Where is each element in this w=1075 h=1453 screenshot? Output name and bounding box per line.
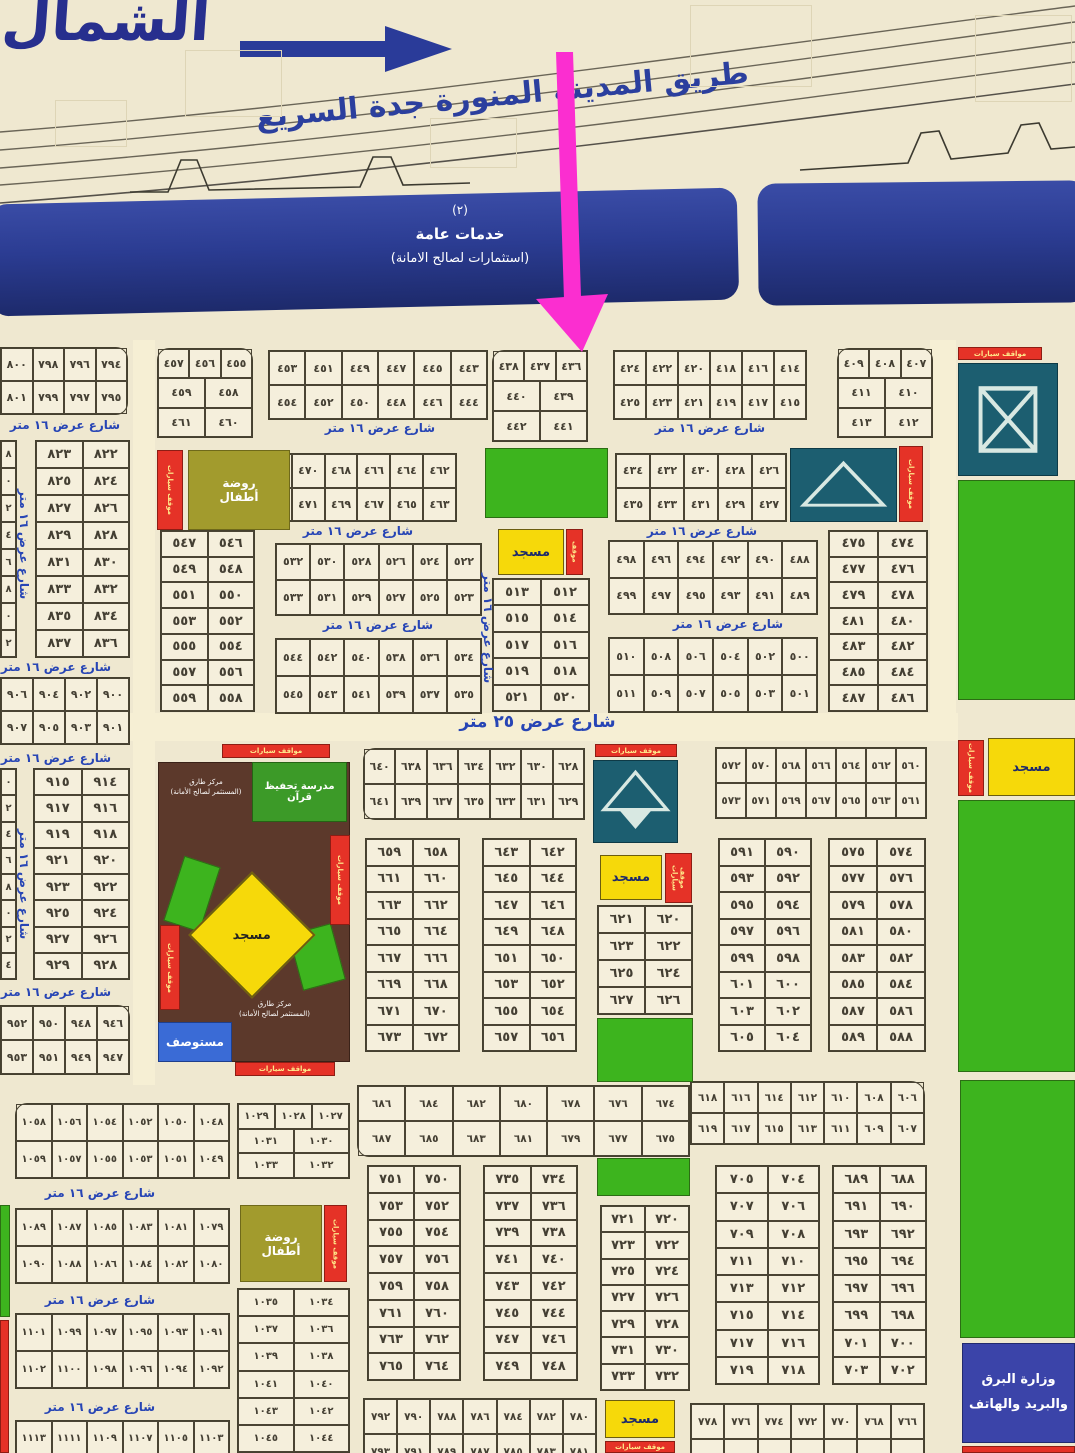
plot-٤٦٨: ٤٦٨ (325, 454, 358, 488)
plot-٧٦٧: ٧٦٧ (891, 1439, 924, 1453)
plot-٦٠٦: ٦٠٦ (891, 1082, 924, 1113)
park-area (597, 1158, 690, 1196)
plot-٤٩٢: ٤٩٢ (713, 541, 748, 578)
plot-٥٧٣: ٥٧٣ (716, 783, 746, 818)
plot-٧٧٩: ٧٧٩ (691, 1439, 724, 1453)
plot-٨٢٦: ٨٢٦ (83, 495, 130, 522)
plot-٩٠٢: ٩٠٢ (65, 678, 97, 711)
plot-٦١٥: ٦١٥ (758, 1113, 791, 1144)
plot-٥٦٢: ٥٦٢ (866, 748, 896, 783)
plot-٨٢٣: ٨٢٣ (36, 441, 83, 468)
plot-٥٦٤: ٥٦٤ (836, 748, 866, 783)
plot-٦٣٣: ٦٣٣ (490, 784, 521, 819)
plot-٤٣٤: ٤٣٤ (616, 454, 650, 488)
plot-٥٠٨: ٥٠٨ (644, 638, 679, 675)
plot-١٠٩٤: ١٠٩٤ (158, 1351, 194, 1388)
plot-٦٩١: ٦٩١ (833, 1193, 880, 1220)
plot-١٠٤٤: ١٠٤٤ (294, 1425, 350, 1452)
street-label: شارع عرض ١٦ متر (295, 421, 465, 435)
plot-٧١٣: ٧١٣ (716, 1275, 768, 1302)
plot-٧٨١: ٧٨١ (563, 1434, 596, 1453)
plot-١٠٨٣: ١٠٨٣ (123, 1209, 159, 1246)
plot-٥٢٩: ٥٢٩ (344, 580, 378, 616)
plot-٩١٩: ٩١٩ (34, 822, 82, 848)
quran-school-block: مدرسة تحفيظقرآن (252, 762, 347, 822)
parking-strip: موقف سيارات (324, 1205, 347, 1282)
plot-٤٣٠: ٤٣٠ (684, 454, 718, 488)
plot-٥٧٩: ٥٧٩ (829, 892, 877, 919)
plot-٥٩٧: ٥٩٧ (719, 919, 765, 946)
substation-block (958, 363, 1058, 476)
plot-map-page: الشمال طريق المدينة المنورة جدة السريع (… (0, 0, 1075, 1453)
plot-٦٦٢: ٦٦٢ (413, 892, 460, 919)
plot-block: ١١١٣١١١١١١٠٩١١٠٧١١٠٥١١٠٣١١١٤١١١٢١١١٠١١٠٨… (15, 1420, 230, 1453)
plot-٧٨٧: ٧٨٧ (463, 1434, 496, 1453)
plot-١٠٩٥: ١٠٩٥ (123, 1314, 159, 1351)
plot-٧٨٣: ٧٨٣ (530, 1434, 563, 1453)
plot-٧٤٤: ٧٤٤ (531, 1300, 578, 1327)
plot-block: ٤٠٩٤٠٨٤٠٧٤١١٤١٠٤١٣٤١٢ (837, 348, 933, 438)
parking-strip: موقف سيارات (160, 925, 180, 1010)
plot-٧٨٤: ٧٨٤ (497, 1399, 530, 1434)
plot-١٠٥٨: ١٠٥٨ (16, 1104, 52, 1141)
plot-block: ٥٤٧٥٤٦٥٤٩٥٤٨٥٥١٥٥٠٥٥٣٥٥٢٥٥٥٥٥٤٥٥٧٥٥٦٥٥٩٥… (160, 530, 255, 712)
plot-٦٧٢: ٦٧٢ (413, 1025, 460, 1052)
plot-٦٢٥: ٦٢٥ (598, 960, 645, 987)
plot-٧٤٠: ٧٤٠ (531, 1246, 578, 1273)
plot-٦٥٣: ٦٥٣ (483, 972, 530, 999)
plot-block: ٦٨٩٦٨٨٦٩١٦٩٠٦٩٣٦٩٢٦٩٥٦٩٤٦٩٧٦٩٦٦٩٩٦٩٨٧٠١٧… (832, 1165, 927, 1385)
plot-٦١٢: ٦١٢ (791, 1082, 824, 1113)
plot-٦٢٩: ٦٢٩ (553, 784, 584, 819)
plot-٦٨٨: ٦٨٨ (880, 1166, 927, 1193)
plot-٦٣٩: ٦٣٩ (395, 784, 426, 819)
plot-٧٥٩: ٧٥٩ (368, 1273, 414, 1300)
plot-٤٧٤: ٤٧٤ (878, 531, 927, 557)
plot-٧٩٠: ٧٩٠ (397, 1399, 430, 1434)
plot-٤١٧: ٤١٧ (742, 385, 774, 419)
plot-٤٥١: ٤٥١ (305, 351, 341, 385)
plot-٦٢٧: ٦٢٧ (598, 987, 645, 1014)
plot-١١٠٢: ١١٠٢ (16, 1351, 52, 1388)
plot-block: ٧٠٥٧٠٤٧٠٧٧٠٦٧٠٩٧٠٨٧١١٧١٠٧١٣٧١٢٧١٥٧١٤٧١٧٧… (715, 1165, 820, 1385)
plot-٦٥٤: ٦٥٤ (530, 998, 577, 1025)
plot-٥٩٩: ٥٩٩ (719, 945, 765, 972)
plot-٧٠٤: ٧٠٤ (768, 1166, 820, 1193)
plot-٨٢٢: ٨٢٢ (83, 441, 130, 468)
plot-٦٩٢: ٦٩٢ (880, 1221, 927, 1248)
plot-٦٦٨: ٦٦٨ (413, 972, 460, 999)
plot-٦٣٠: ٦٣٠ (521, 749, 552, 784)
plot-٩٢١: ٩٢١ (34, 848, 82, 874)
plot-٥٢٨: ٥٢٨ (344, 544, 378, 580)
plot-٥٧٥: ٥٧٥ (829, 839, 877, 866)
plot-٥٦٣: ٥٦٣ (866, 783, 896, 818)
plot-٧٣٨: ٧٣٨ (531, 1220, 578, 1247)
plot-١٠٥١: ١٠٥١ (158, 1141, 194, 1178)
plot-٤٧١: ٤٧١ (292, 488, 325, 522)
plot-٧٢٦: ٧٢٦ (645, 1285, 689, 1311)
plot-٥٧٢: ٥٧٢ (716, 748, 746, 783)
services-sign: (٢) خدمات عامة (استثمارات لصالح الامانة) (330, 203, 590, 266)
plot-٧٤٦: ٧٤٦ (531, 1327, 578, 1354)
plot-٥٨٧: ٥٨٧ (829, 998, 877, 1025)
plot-١٠٣٧: ١٠٣٧ (238, 1316, 294, 1343)
plot-١٠٤٢: ١٠٤٢ (294, 1398, 350, 1425)
plot-٦٠٣: ٦٠٣ (719, 998, 765, 1025)
dia-symbol-icon (594, 761, 677, 842)
services-sign-title: خدمات عامة (330, 225, 590, 243)
plot-٧٣٦: ٧٣٦ (531, 1193, 578, 1220)
plot-٦٧٣: ٦٧٣ (366, 1025, 413, 1052)
plot-٦٧٨: ٦٧٨ (547, 1086, 594, 1121)
plot-٩٢٥: ٩٢٥ (34, 900, 82, 926)
parking-label: مواقف سيارات (958, 347, 1042, 360)
plot-١٠٣١: ١٠٣١ (238, 1129, 294, 1154)
plot-٧٨٠: ٧٨٠ (563, 1399, 596, 1434)
plot-٦٩٧: ٦٩٧ (833, 1275, 880, 1302)
plot-٤٢٤: ٤٢٤ (614, 351, 646, 385)
plot-٨٠٠: ٨٠٠ (1, 348, 33, 381)
plot-٤٨٤: ٤٨٤ (878, 660, 927, 686)
plot-٨٣٣: ٨٣٣ (36, 576, 83, 603)
plot-٤٣٥: ٤٣٥ (616, 488, 650, 522)
plot-٧٨٩: ٧٨٩ (430, 1434, 463, 1453)
plot-٨٢٧: ٨٢٧ (36, 495, 83, 522)
plot-١٠٣٦: ١٠٣٦ (294, 1316, 350, 1343)
plot-٦٩٠: ٦٩٠ (880, 1193, 927, 1220)
plot-٤٨٩: ٤٨٩ (782, 578, 817, 615)
plot-٤٤٣: ٤٤٣ (451, 351, 487, 385)
complex-note-label: (المستثمر لصالح الأمانة) (171, 788, 242, 798)
plot-٧٩٢: ٧٩٢ (364, 1399, 397, 1434)
tri-symbol-icon (791, 449, 896, 521)
plot-٦٤٢: ٦٤٢ (530, 839, 577, 866)
plot-٤٤٢: ٤٤٢ (493, 411, 540, 441)
plot-٧٥٥: ٧٥٥ (368, 1220, 414, 1247)
parking-strip: موقف سيارات (899, 446, 923, 522)
plot-٦٦٣: ٦٦٣ (366, 892, 413, 919)
plot-٤٠٨: ٤٠٨ (869, 349, 900, 378)
plot-block: ٦٤٠٦٣٨٦٣٦٦٣٤٦٣٢٦٣٠٦٢٨٦٤١٦٣٩٦٣٧٦٣٥٦٣٣٦٣١٦… (363, 748, 585, 820)
street-label: شارع عرض ٢٥ متر (420, 712, 655, 732)
plot-٦٣٦: ٦٣٦ (427, 749, 458, 784)
background-plot-outline (430, 118, 517, 168)
plot-٥٠٢: ٥٠٢ (748, 638, 783, 675)
plot-٦٠٢: ٦٠٢ (765, 998, 811, 1025)
plot-٥٩٥: ٥٩٥ (719, 892, 765, 919)
plot-٧٧٧: ٧٧٧ (724, 1439, 757, 1453)
plot-١٠٨٨: ١٠٨٨ (52, 1246, 88, 1283)
plot-٧٥٨: ٧٥٨ (414, 1273, 460, 1300)
plot-٥٦٧: ٥٦٧ (806, 783, 836, 818)
parking-label: مواقف سيارات (222, 744, 330, 758)
plot-٦٤٧: ٦٤٧ (483, 892, 530, 919)
plot-٦٢٠: ٦٢٠ (645, 906, 692, 933)
plot-٦٤٣: ٦٤٣ (483, 839, 530, 866)
parking-strip: موقف سيارات (958, 740, 984, 796)
plot-٧٤١: ٧٤١ (484, 1246, 531, 1273)
plot-١٠٢٧: ١٠٢٧ (312, 1104, 349, 1129)
plot-٩٥٢: ٩٥٢ (1, 1006, 33, 1040)
plot-٤٩٧: ٤٩٧ (644, 578, 679, 615)
plot-block: ٩١٥٩١٤٩١٧٩١٦٩١٩٩١٨٩٢١٩٢٠٩٢٣٩٢٢٩٢٥٩٢٤٩٢٧٩… (33, 768, 130, 980)
plot-٥٠٧: ٥٠٧ (678, 675, 713, 712)
plot-٥٣٦: ٥٣٦ (413, 639, 447, 676)
plot-٧٤٣: ٧٤٣ (484, 1273, 531, 1300)
ministry-block-label: والبريد والهاتف (969, 1393, 1068, 1418)
plot-٧٩٩: ٧٩٩ (33, 381, 65, 414)
plot-٥٢٧: ٥٢٧ (379, 580, 413, 616)
plot-٦٣٧: ٦٣٧ (427, 784, 458, 819)
plot-٥٥٠: ٥٥٠ (208, 582, 255, 608)
plot-٧٩١: ٧٩١ (397, 1434, 430, 1453)
plot-٧٥٠: ٧٥٠ (414, 1166, 460, 1193)
plot-٧٧١: ٧٧١ (824, 1439, 857, 1453)
plot-block: ٥١٠٥٠٨٥٠٦٥٠٤٥٠٢٥٠٠٥١١٥٠٩٥٠٧٥٠٥٥٠٣٥٠١ (608, 637, 818, 713)
plot-٧٤٩: ٧٤٩ (484, 1353, 531, 1380)
kindergarten-block: روضةأطفال (188, 450, 290, 530)
plot-٧٤٢: ٧٤٢ (531, 1273, 578, 1300)
plot-٤٣٢: ٤٣٢ (650, 454, 684, 488)
plot-٧٥١: ٧٥١ (368, 1166, 414, 1193)
plot-١١٠٠: ١١٠٠ (52, 1351, 88, 1388)
plot-block: ١١٠١١٠٩٩١٠٩٧١٠٩٥١٠٩٣١٠٩١١١٠٢١١٠٠١٠٩٨١٠٩٦… (15, 1313, 230, 1389)
plot-٥٣٣: ٥٣٣ (276, 580, 310, 616)
street-label: شارع عرض ١٦ متر (20, 1400, 180, 1414)
plot-٦١٨: ٦١٨ (691, 1082, 724, 1113)
plot-block: ٦٤٣٦٤٢٦٤٥٦٤٤٦٤٧٦٤٦٦٤٩٦٤٨٦٥١٦٥٠٦٥٣٦٥٢٦٥٥٦… (482, 838, 577, 1052)
plot-١٠٣٩: ١٠٣٩ (238, 1343, 294, 1370)
plot-٨٣٥: ٨٣٥ (36, 603, 83, 630)
plot-٦٩٤: ٦٩٤ (880, 1248, 927, 1275)
plot-٨٣٤: ٨٣٤ (83, 603, 130, 630)
plot-١٠٢٩: ١٠٢٩ (238, 1104, 275, 1129)
plot-٥٣٩: ٥٣٩ (379, 676, 413, 713)
plot-٦٩٨: ٦٩٨ (880, 1302, 927, 1329)
plot-block: ٩٥٢٩٥٠٩٤٨٩٤٦٩٥٣٩٥١٩٤٩٩٤٧ (0, 1005, 130, 1075)
plot-block: ٩٠٦٩٠٤٩٠٢٩٠٠٩٠٧٩٠٥٩٠٣٩٠١ (0, 677, 130, 745)
plot-block: ٤٥٣٤٥١٤٤٩٤٤٧٤٤٥٤٤٣٤٥٤٤٥٢٤٥٠٤٤٨٤٤٦٤٤٤ (268, 350, 488, 420)
plot-٧٥٧: ٧٥٧ (368, 1246, 414, 1273)
plot-١٠٢٨: ١٠٢٨ (275, 1104, 312, 1129)
plot-٥٩٠: ٥٩٠ (765, 839, 811, 866)
mosque-block: مسجد (600, 855, 662, 900)
plot-٩٢٣: ٩٢٣ (34, 874, 82, 900)
plot-٥٢٥: ٥٢٥ (413, 580, 447, 616)
plot-٥٧٠: ٥٧٠ (746, 748, 776, 783)
plot-٥٩١: ٥٩١ (719, 839, 765, 866)
plot-٤١٩: ٤١٩ (710, 385, 742, 419)
substation-block (790, 448, 897, 522)
plot-٤٨٥: ٤٨٥ (829, 660, 878, 686)
plot-٥٠٥: ٥٠٥ (713, 675, 748, 712)
plot-١٠٩٠: ١٠٩٠ (16, 1246, 52, 1283)
plot-٤٥٠: ٤٥٠ (342, 385, 378, 419)
plot-٦٧٩: ٦٧٩ (547, 1121, 594, 1156)
plot-٥٧٤: ٥٧٤ (877, 839, 925, 866)
plot-٤٥٩: ٤٥٩ (158, 378, 205, 407)
plot-٤٩٦: ٤٩٦ (644, 541, 679, 578)
partial-plot-cell: ٠ (1, 900, 16, 926)
ministry-block: وزارة البرقوالبريد والهاتف (962, 1343, 1075, 1443)
parking-label: مواقف سيارات (235, 1062, 335, 1076)
plot-٩٤٦: ٩٤٦ (97, 1006, 129, 1040)
plot-٤١٣: ٤١٣ (838, 408, 885, 437)
ministry-block-label: وزارة البرق (981, 1368, 1055, 1393)
plot-٥٠١: ٥٠١ (782, 675, 817, 712)
plot-٦٤٤: ٦٤٤ (530, 866, 577, 893)
x-symbol-icon (959, 364, 1057, 475)
plot-٧٦١: ٧٦١ (368, 1300, 414, 1327)
plot-٦٣٥: ٦٣٥ (458, 784, 489, 819)
street-label: شارع عرض ١٦ متر (0, 985, 112, 999)
plot-٨٣١: ٨٣١ (36, 549, 83, 576)
kindergarten-block-label: روضة (222, 476, 255, 490)
plot-٨٣٧: ٨٣٧ (36, 630, 83, 657)
plot-٤٤٠: ٤٤٠ (493, 381, 540, 411)
plot-٦١٦: ٦١٦ (724, 1082, 757, 1113)
plot-٧٨٥: ٧٨٥ (497, 1434, 530, 1453)
plot-٥٤٩: ٥٤٩ (161, 557, 208, 583)
mosque-block: مسجد (498, 529, 564, 575)
plot-١١٠٥: ١١٠٥ (158, 1421, 194, 1453)
plot-٧٥٦: ٧٥٦ (414, 1246, 460, 1273)
plot-٧٠٧: ٧٠٧ (716, 1193, 768, 1220)
plot-٧٧٤: ٧٧٤ (758, 1404, 791, 1439)
plot-٥٤٤: ٥٤٤ (276, 639, 310, 676)
plot-٦٥٠: ٦٥٠ (530, 945, 577, 972)
plot-٧١١: ٧١١ (716, 1248, 768, 1275)
partial-plot-column: ٠٢٤٦٨٠٢٤ (0, 768, 17, 980)
plot-٥٧٨: ٥٧٨ (877, 892, 925, 919)
plot-block: ٥٧٥٥٧٤٥٧٧٥٧٦٥٧٩٥٧٨٥٨١٥٨٠٥٨٣٥٨٢٥٨٥٥٨٤٥٨٧٥… (828, 838, 926, 1052)
plot-٧٧٦: ٧٧٦ (724, 1404, 757, 1439)
plot-٥٠٣: ٥٠٣ (748, 675, 783, 712)
background-plot-outline (185, 50, 282, 117)
plot-block: ٥٩١٥٩٠٥٩٣٥٩٢٥٩٥٥٩٤٥٩٧٥٩٦٥٩٩٥٩٨٦٠١٦٠٠٦٠٣٦… (718, 838, 812, 1052)
plot-٦٦٦: ٦٦٦ (413, 945, 460, 972)
plot-١٠٤٥: ١٠٤٥ (238, 1425, 294, 1452)
plot-٧٦٩: ٧٦٩ (857, 1439, 890, 1453)
plot-block: ٤٣٨٤٣٧٤٣٦٤٤٠٤٣٩٤٤٢٤٤١ (492, 350, 588, 442)
plot-١١٠٩: ١١٠٩ (87, 1421, 123, 1453)
partial-plot-cell: ٨ (1, 576, 16, 603)
plot-٥٥٨: ٥٥٨ (208, 685, 255, 711)
plot-٥٧٧: ٥٧٧ (829, 866, 877, 893)
plot-٤٣٨: ٤٣٨ (493, 351, 524, 381)
plot-٦٩٩: ٦٩٩ (833, 1302, 880, 1329)
plot-block: ٨٠٠٧٩٨٧٩٦٧٩٤٨٠١٧٩٩٧٩٧٧٩٥ (0, 347, 128, 415)
plot-٦١٠: ٦١٠ (824, 1082, 857, 1113)
plot-٩٠٦: ٩٠٦ (1, 678, 33, 711)
plot-٩٢٦: ٩٢٦ (82, 927, 130, 953)
plot-١٠٩٨: ١٠٩٨ (87, 1351, 123, 1388)
street-label: شارع عرض ١٦ متر (20, 1293, 180, 1307)
plot-٧٥٤: ٧٥٤ (414, 1220, 460, 1247)
plot-١٠٣٠: ١٠٣٠ (294, 1129, 350, 1154)
plot-٧٦٥: ٧٦٥ (368, 1353, 414, 1380)
plot-١٠٣٣: ١٠٣٣ (238, 1153, 294, 1178)
plot-٥٥٥: ٥٥٥ (161, 634, 208, 660)
plot-٥١٧: ٥١٧ (493, 632, 541, 658)
plot-٧٤٨: ٧٤٨ (531, 1353, 578, 1380)
plot-٤٤٦: ٤٤٦ (414, 385, 450, 419)
plot-٦٠١: ٦٠١ (719, 972, 765, 999)
services-banner-right (757, 180, 1075, 305)
plot-٧٠٣: ٧٠٣ (833, 1357, 880, 1384)
quran-school-block-label: قرآن (287, 792, 312, 803)
plot-block: ٥٧٢٥٧٠٥٦٨٥٦٦٥٦٤٥٦٢٥٦٠٥٧٣٥٧١٥٦٩٥٦٧٥٦٥٥٦٣٥… (715, 747, 927, 819)
plot-٥٩٨: ٥٩٨ (765, 945, 811, 972)
plot-٥٣٢: ٥٣٢ (276, 544, 310, 580)
complex-note-label: مركز طارق (258, 1000, 292, 1010)
plot-٥٢١: ٥٢١ (493, 685, 541, 711)
plot-٥٥٢: ٥٥٢ (208, 608, 255, 634)
plot-٤٦١: ٤٦١ (158, 408, 205, 437)
plot-٤٩١: ٤٩١ (748, 578, 783, 615)
plot-٧٠٨: ٧٠٨ (768, 1221, 820, 1248)
plot-٦٥٧: ٦٥٧ (483, 1025, 530, 1052)
kindergarten-block-label: روضة (264, 1230, 297, 1244)
plot-٩٤٧: ٩٤٧ (97, 1040, 129, 1074)
plot-١٠٤٠: ١٠٤٠ (294, 1371, 350, 1398)
plot-٦١١: ٦١١ (824, 1113, 857, 1144)
plot-٤٨٨: ٤٨٨ (782, 541, 817, 578)
plot-٥٤٨: ٥٤٨ (208, 557, 255, 583)
plot-block: ٦١٨٦١٦٦١٤٦١٢٦١٠٦٠٨٦٠٦٦١٩٦١٧٦١٥٦١٣٦١١٦٠٩٦… (690, 1081, 925, 1145)
plot-٦٨٩: ٦٨٩ (833, 1166, 880, 1193)
plot-٥٩٢: ٥٩٢ (765, 866, 811, 893)
plot-٧١٤: ٧١٤ (768, 1302, 820, 1329)
plot-block: ٧٣٥٧٣٤٧٣٧٧٣٦٧٣٩٧٣٨٧٤١٧٤٠٧٤٣٧٤٢٧٤٥٧٤٤٧٤٧٧… (483, 1165, 578, 1381)
plot-٧٢٨: ٧٢٨ (645, 1311, 689, 1337)
plot-٥٠٦: ٥٠٦ (678, 638, 713, 675)
plot-٦٢٦: ٦٢٦ (645, 987, 692, 1014)
plot-١٠٩٦: ١٠٩٦ (123, 1351, 159, 1388)
plot-٥١٥: ٥١٥ (493, 605, 541, 631)
plot-٧٢٧: ٧٢٧ (601, 1285, 645, 1311)
clinic-block: مستوصف (158, 1022, 232, 1062)
park-area (0, 1205, 10, 1317)
plot-٩٠٠: ٩٠٠ (97, 678, 129, 711)
plot-٩٥٠: ٩٥٠ (33, 1006, 65, 1040)
plot-٤٧٧: ٤٧٧ (829, 557, 878, 583)
plot-٧١٧: ٧١٧ (716, 1330, 768, 1357)
plot-٦١٣: ٦١٣ (791, 1113, 824, 1144)
plot-٥٦٦: ٥٦٦ (806, 748, 836, 783)
plot-٨٣٢: ٨٣٢ (83, 576, 130, 603)
plot-٥٤٧: ٥٤٧ (161, 531, 208, 557)
plot-٧٢٥: ٧٢٥ (601, 1259, 645, 1285)
plot-٩٠٥: ٩٠٥ (33, 711, 65, 744)
complex-note: مركز طارق(المستثمر لصالح الأمانة) (222, 996, 327, 1024)
plot-٦٤٩: ٦٤٩ (483, 919, 530, 946)
plot-٦٢٢: ٦٢٢ (645, 933, 692, 960)
plot-٤٦٤: ٤٦٤ (390, 454, 423, 488)
quran-school-block-label: مدرسة تحفيظ (264, 781, 334, 792)
plot-٤٠٧: ٤٠٧ (901, 349, 932, 378)
plot-٤٥٤: ٤٥٤ (269, 385, 305, 419)
plot-١٠٥٤: ١٠٥٤ (87, 1104, 123, 1141)
plot-block: ٤٢٤٤٢٢٤٢٠٤١٨٤١٦٤١٤٤٢٥٤٢٣٤٢١٤١٩٤١٧٤١٥ (613, 350, 807, 420)
plot-٧٢٢: ٧٢٢ (645, 1232, 689, 1258)
plot-٤٦٩: ٤٦٩ (325, 488, 358, 522)
plot-٥٠٤: ٥٠٤ (713, 638, 748, 675)
plot-block: ٧٧٨٧٧٦٧٧٤٧٧٢٧٧٠٧٦٨٧٦٦٧٧٩٧٧٧٧٧٥٧٧٣٧٧١٧٦٩٧… (690, 1403, 925, 1453)
plot-٥٣٠: ٥٣٠ (310, 544, 344, 580)
parking-strip: موقف سيارات (665, 853, 692, 903)
